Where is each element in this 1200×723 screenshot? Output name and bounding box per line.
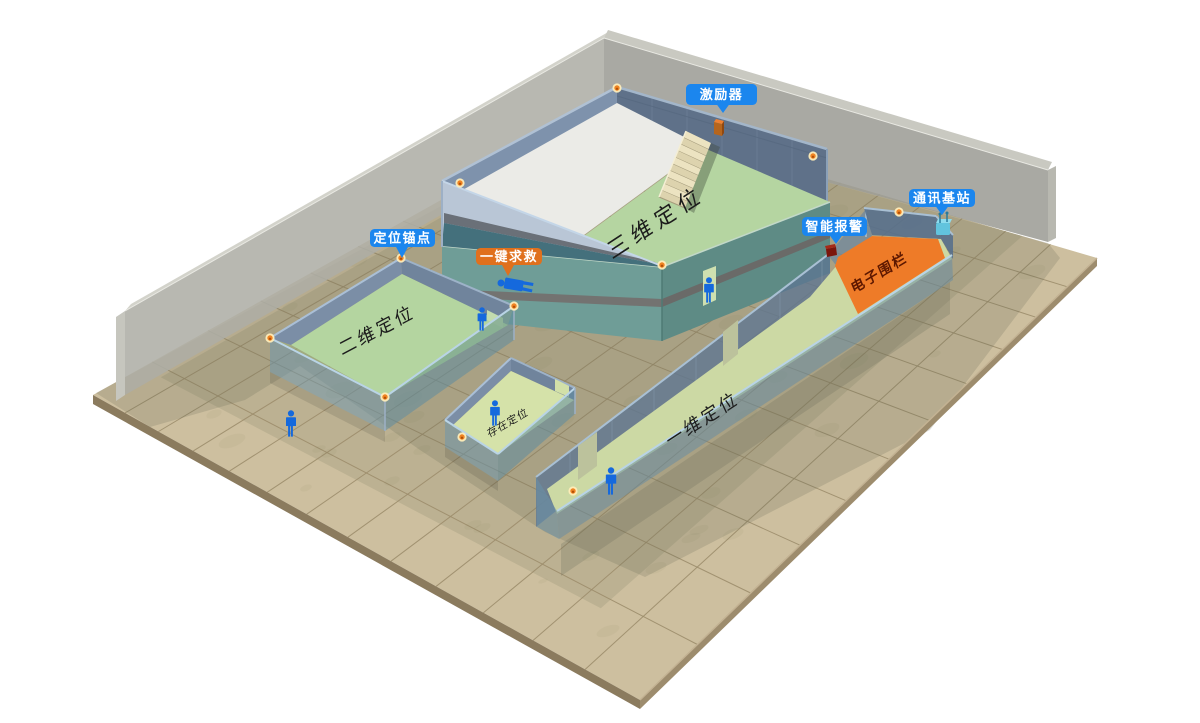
svg-text:定位锚点: 定位锚点 [372, 231, 431, 246]
svg-text:一键求救: 一键求救 [480, 249, 538, 264]
svg-text:智能报警: 智能报警 [805, 219, 863, 234]
svg-text:激励器: 激励器 [700, 87, 744, 102]
svg-text:通讯基站: 通讯基站 [913, 191, 971, 206]
